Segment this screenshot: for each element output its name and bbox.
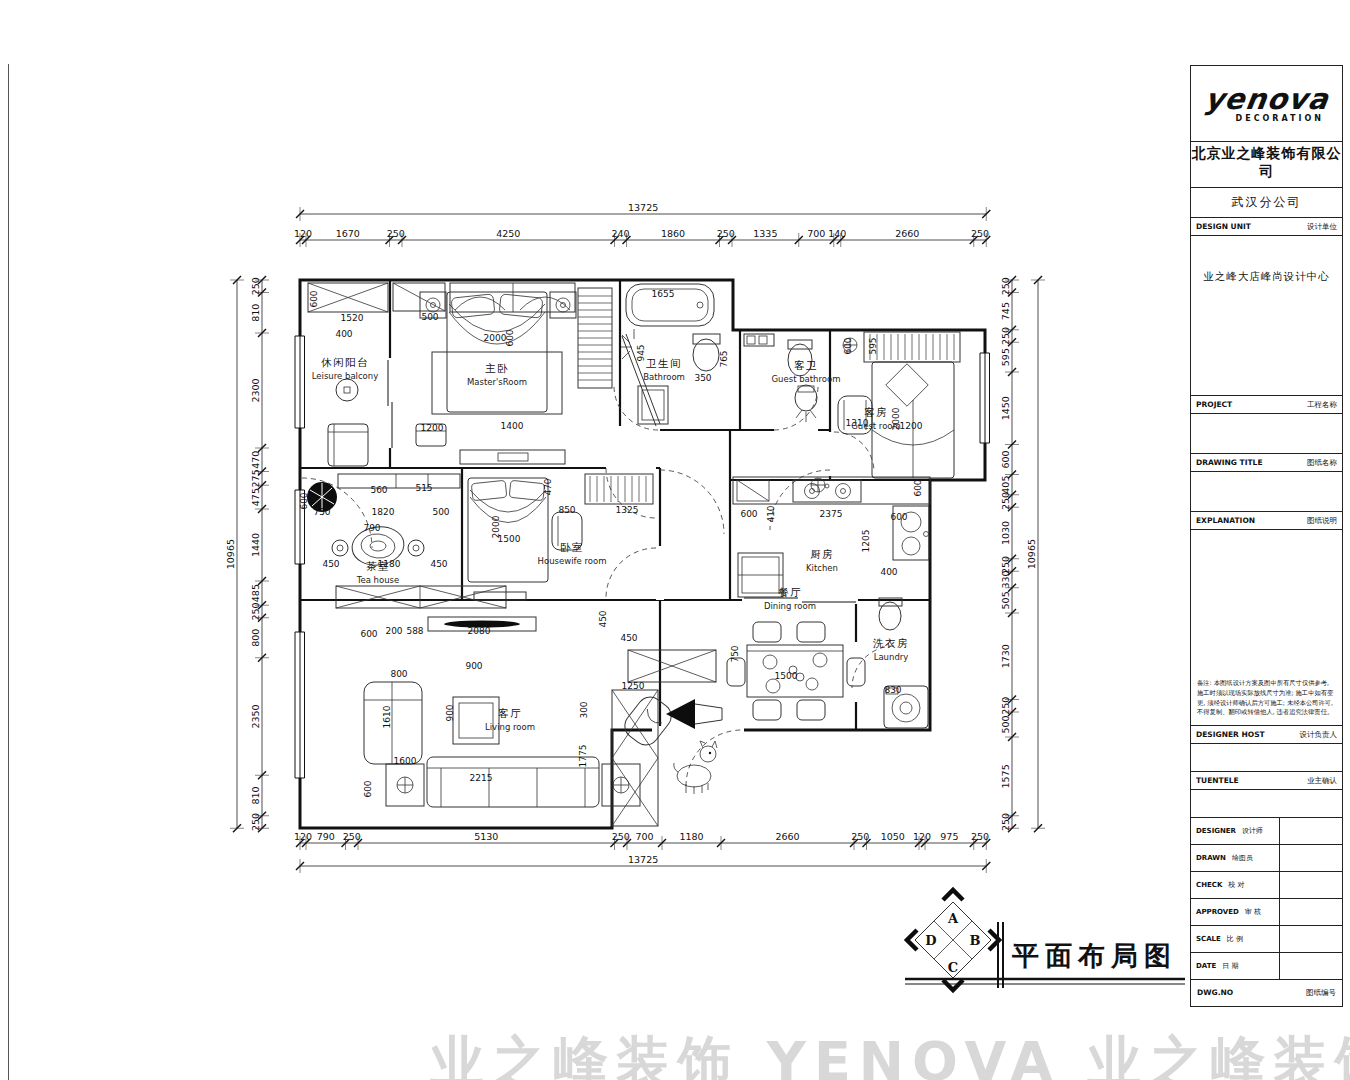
svg-text:2080: 2080 bbox=[468, 626, 491, 636]
svg-text:250: 250 bbox=[1000, 327, 1011, 345]
svg-text:Tea house: Tea house bbox=[356, 575, 400, 585]
svg-text:厨房: 厨房 bbox=[810, 548, 834, 560]
clientele-label-en: TUENTELE bbox=[1196, 776, 1239, 785]
furniture-guest-room bbox=[838, 332, 960, 478]
svg-text:250: 250 bbox=[1000, 277, 1011, 295]
svg-text:客厅: 客厅 bbox=[498, 707, 522, 719]
svg-text:Master'sRoom: Master'sRoom bbox=[467, 377, 527, 387]
svg-text:595: 595 bbox=[868, 337, 878, 354]
clientele-sign-area bbox=[1191, 790, 1342, 818]
note-title: 备注: bbox=[1197, 679, 1212, 686]
svg-text:Living room: Living room bbox=[485, 722, 535, 732]
svg-text:1610: 1610 bbox=[382, 705, 392, 728]
svg-text:卫生间: 卫生间 bbox=[646, 357, 682, 369]
designer-value bbox=[1279, 818, 1342, 844]
svg-text:主卧: 主卧 bbox=[485, 362, 509, 374]
svg-text:120: 120 bbox=[294, 831, 312, 842]
svg-text:2000: 2000 bbox=[484, 333, 507, 343]
svg-text:400: 400 bbox=[880, 567, 897, 577]
drawing-title-label-en: DRAWING TITLE bbox=[1196, 458, 1263, 467]
notes-text: 备注: 本图纸设计方案及图中所有尺寸仅供参考, 施工时须以现场实际放线尺寸为准;… bbox=[1197, 678, 1337, 717]
scale-label-cn: 比 例 bbox=[1227, 934, 1243, 944]
svg-text:330: 330 bbox=[1000, 570, 1011, 588]
svg-text:600: 600 bbox=[843, 337, 853, 354]
title-block: yenova DECORATION 北京业之峰装饰有限公司 BEIJING YE… bbox=[1190, 65, 1343, 1007]
svg-text:900: 900 bbox=[465, 661, 482, 671]
approved-value bbox=[1279, 899, 1342, 925]
svg-text:250: 250 bbox=[971, 831, 989, 842]
svg-text:600: 600 bbox=[299, 492, 309, 509]
dimension-chains: 1201670250425024018602501335700140266025… bbox=[225, 202, 1045, 873]
svg-text:700: 700 bbox=[635, 831, 653, 842]
svg-text:850: 850 bbox=[558, 505, 575, 515]
dwg-no-label-cn: 图纸编号 bbox=[1306, 988, 1336, 998]
svg-text:Bathroom: Bathroom bbox=[643, 372, 685, 382]
svg-text:1205: 1205 bbox=[861, 530, 871, 553]
svg-text:餐厅: 餐厅 bbox=[778, 586, 802, 598]
svg-text:1775: 1775 bbox=[578, 745, 588, 768]
company-name-cn: 北京业之峰装饰有限公司 bbox=[1191, 145, 1342, 181]
svg-text:Dining room: Dining room bbox=[764, 601, 816, 611]
svg-text:600: 600 bbox=[505, 329, 515, 346]
svg-text:900: 900 bbox=[445, 704, 455, 721]
compass-letter-c: C bbox=[948, 960, 958, 975]
date-label-cn: 日 期 bbox=[1222, 961, 1238, 971]
svg-text:13725: 13725 bbox=[628, 202, 658, 213]
drawn-label-cn: 绘图员 bbox=[1232, 853, 1253, 863]
date-value bbox=[1279, 953, 1342, 979]
orientation-compass: A B C D bbox=[907, 890, 999, 990]
designer-host-row: DESIGNER HOST 设计负责人 bbox=[1191, 726, 1342, 744]
explanation-label-en: EXPLANATION bbox=[1196, 516, 1255, 525]
svg-text:洗衣房: 洗衣房 bbox=[873, 637, 909, 649]
svg-text:2660: 2660 bbox=[895, 228, 919, 239]
svg-text:1250: 1250 bbox=[622, 681, 645, 691]
design-unit-label-cn: 设计单位 bbox=[1307, 222, 1337, 232]
svg-text:600: 600 bbox=[363, 780, 373, 797]
scale-row: SCALE比 例 bbox=[1191, 926, 1342, 953]
svg-text:250: 250 bbox=[717, 228, 735, 239]
svg-text:1730: 1730 bbox=[1000, 644, 1011, 668]
svg-text:2000: 2000 bbox=[491, 515, 501, 538]
svg-text:475: 475 bbox=[250, 488, 261, 506]
designer-label-en: DESIGNER bbox=[1196, 827, 1236, 835]
svg-text:750: 750 bbox=[313, 507, 330, 517]
project-value-area bbox=[1191, 414, 1342, 454]
watermark: 业之峰装饰 YENOVA 业之峰装饰 bbox=[430, 1026, 1350, 1080]
svg-text:Guest room: Guest room bbox=[851, 421, 901, 431]
svg-text:600: 600 bbox=[1000, 450, 1011, 468]
svg-text:250: 250 bbox=[250, 813, 261, 831]
svg-text:500: 500 bbox=[1000, 715, 1011, 733]
svg-text:250: 250 bbox=[387, 228, 405, 239]
svg-text:830: 830 bbox=[884, 685, 901, 695]
svg-text:588: 588 bbox=[406, 626, 423, 636]
project-label-cn: 工程名称 bbox=[1307, 400, 1337, 410]
svg-text:1520: 1520 bbox=[341, 313, 364, 323]
svg-text:1400: 1400 bbox=[501, 421, 524, 431]
svg-text:560: 560 bbox=[370, 485, 387, 495]
svg-text:1030: 1030 bbox=[1000, 521, 1011, 545]
svg-text:1440: 1440 bbox=[250, 533, 261, 557]
svg-text:1820: 1820 bbox=[372, 507, 395, 517]
svg-text:1050: 1050 bbox=[881, 831, 905, 842]
svg-text:1200: 1200 bbox=[421, 423, 444, 433]
svg-text:1670: 1670 bbox=[336, 228, 360, 239]
svg-text:1655: 1655 bbox=[652, 289, 675, 299]
svg-text:4250: 4250 bbox=[496, 228, 520, 239]
svg-text:400: 400 bbox=[335, 329, 352, 339]
check-row: CHECK校 对 bbox=[1191, 872, 1342, 899]
svg-text:470: 470 bbox=[250, 451, 261, 469]
svg-text:Laundry: Laundry bbox=[874, 652, 909, 662]
svg-text:140: 140 bbox=[828, 228, 846, 239]
drawn-row: DRAWN绘图员 bbox=[1191, 845, 1342, 872]
drawn-value bbox=[1279, 845, 1342, 871]
svg-text:810: 810 bbox=[250, 304, 261, 322]
svg-text:250: 250 bbox=[1000, 697, 1011, 715]
design-unit-label-en: DESIGN UNIT bbox=[1196, 222, 1251, 231]
approved-label-cn: 审 核 bbox=[1245, 907, 1261, 917]
svg-text:1450: 1450 bbox=[1000, 396, 1011, 420]
svg-text:250: 250 bbox=[851, 831, 869, 842]
svg-text:765: 765 bbox=[719, 350, 729, 367]
svg-text:2660: 2660 bbox=[775, 831, 799, 842]
drawing-sheet: A B C D 12016702504250240186025013357001… bbox=[0, 0, 1350, 1080]
svg-text:450: 450 bbox=[620, 633, 637, 643]
svg-text:10965: 10965 bbox=[225, 539, 236, 569]
svg-text:250: 250 bbox=[971, 228, 989, 239]
svg-text:2350: 2350 bbox=[250, 704, 261, 728]
svg-text:250: 250 bbox=[1000, 492, 1011, 510]
clientele-row: TUENTELE 业主确认 bbox=[1191, 772, 1342, 790]
dwg-no-row: DWG.NO 图纸编号 bbox=[1191, 980, 1342, 1005]
svg-text:790: 790 bbox=[363, 523, 380, 533]
svg-text:500: 500 bbox=[421, 312, 438, 322]
check-value bbox=[1279, 872, 1342, 898]
project-label-en: PROJECT bbox=[1196, 400, 1232, 409]
explanation-label-cn: 图纸说明 bbox=[1307, 516, 1337, 526]
svg-text:275: 275 bbox=[250, 469, 261, 487]
svg-text:1335: 1335 bbox=[753, 228, 777, 239]
svg-text:1600: 1600 bbox=[394, 756, 417, 766]
drawing-title-value-area bbox=[1191, 472, 1342, 512]
svg-text:600: 600 bbox=[740, 509, 757, 519]
svg-text:120: 120 bbox=[294, 228, 312, 239]
drawing-title-row: DRAWING TITLE 图纸名称 bbox=[1191, 454, 1342, 472]
date-label-en: DATE bbox=[1196, 962, 1216, 970]
svg-text:750: 750 bbox=[730, 645, 740, 662]
dwg-no-label-en: DWG.NO bbox=[1197, 988, 1233, 997]
furniture-tea-room bbox=[307, 474, 506, 608]
notes-area: 备注: 本图纸设计方案及图中所有尺寸仅供参考, 施工时须以现场实际放线尺寸为准;… bbox=[1191, 530, 1342, 726]
svg-text:470: 470 bbox=[543, 478, 553, 495]
company-logo: yenova DECORATION bbox=[1191, 66, 1342, 142]
compass-letter-a: A bbox=[947, 911, 959, 926]
approved-row: APPROVED审 核 bbox=[1191, 899, 1342, 926]
designer-row: DESIGNER设计师 bbox=[1191, 818, 1342, 845]
compass-letter-d: D bbox=[925, 933, 936, 948]
svg-text:120: 120 bbox=[913, 831, 931, 842]
date-row: DATE日 期 bbox=[1191, 953, 1342, 980]
svg-text:1200: 1200 bbox=[900, 421, 923, 431]
svg-text:5130: 5130 bbox=[474, 831, 498, 842]
designer-host-label-cn: 设计负责人 bbox=[1300, 730, 1338, 740]
designer-host-sign-area bbox=[1191, 744, 1342, 772]
floor-plan: A B C D 12016702504250240186025013357001… bbox=[0, 0, 1350, 1080]
dog-figure bbox=[674, 741, 717, 794]
svg-text:350: 350 bbox=[694, 373, 711, 383]
svg-text:Guest bathroom: Guest bathroom bbox=[772, 374, 841, 384]
design-unit-value: 业之峰大店峰尚设计中心 bbox=[1191, 236, 1342, 396]
svg-text:250: 250 bbox=[250, 602, 261, 620]
svg-text:Housewife room: Housewife room bbox=[538, 556, 607, 566]
explanation-row: EXPLANATION 图纸说明 bbox=[1191, 512, 1342, 530]
svg-text:1180: 1180 bbox=[679, 831, 703, 842]
check-label-cn: 校 对 bbox=[1228, 880, 1244, 890]
svg-text:Kitchen: Kitchen bbox=[806, 563, 838, 573]
svg-text:2215: 2215 bbox=[470, 773, 493, 783]
brand-wordmark: yenova bbox=[1203, 85, 1331, 114]
svg-text:300: 300 bbox=[579, 701, 589, 718]
svg-text:200: 200 bbox=[385, 626, 402, 636]
project-row: PROJECT 工程名称 bbox=[1191, 396, 1342, 414]
svg-text:600: 600 bbox=[890, 512, 907, 522]
svg-text:515: 515 bbox=[415, 483, 432, 493]
designer-host-label-en: DESIGNER HOST bbox=[1196, 730, 1265, 739]
svg-text:450: 450 bbox=[598, 610, 608, 627]
designer-label-cn: 设计师 bbox=[1242, 826, 1263, 836]
entry-arrow bbox=[666, 699, 695, 729]
svg-text:500: 500 bbox=[432, 507, 449, 517]
approved-label-en: APPROVED bbox=[1196, 908, 1239, 916]
svg-text:975: 975 bbox=[940, 831, 958, 842]
svg-text:450: 450 bbox=[430, 559, 447, 569]
svg-text:240: 240 bbox=[611, 228, 629, 239]
svg-text:250: 250 bbox=[612, 831, 630, 842]
check-label-en: CHECK bbox=[1196, 881, 1222, 889]
svg-text:600: 600 bbox=[309, 290, 319, 307]
svg-text:250: 250 bbox=[343, 831, 361, 842]
svg-text:600: 600 bbox=[360, 629, 377, 639]
svg-text:客卫: 客卫 bbox=[794, 359, 818, 371]
scale-value bbox=[1279, 926, 1342, 952]
company-name-block: 北京业之峰装饰有限公司 BEIJING YEZHIFENG DECORATION… bbox=[1191, 142, 1342, 188]
svg-text:1325: 1325 bbox=[616, 505, 639, 515]
branch-name: 武汉分公司 bbox=[1191, 188, 1342, 218]
svg-text:600: 600 bbox=[913, 479, 923, 496]
note-body: 本图纸设计方案及图中所有尺寸仅供参考, 施工时须以现场实际放线尺寸为准; 施工中… bbox=[1197, 679, 1333, 715]
svg-text:客房: 客房 bbox=[864, 406, 888, 418]
svg-text:505: 505 bbox=[1000, 591, 1011, 609]
clientele-label-cn: 业主确认 bbox=[1307, 776, 1337, 786]
drawing-title-label-cn: 图纸名称 bbox=[1307, 458, 1337, 468]
svg-text:2375: 2375 bbox=[820, 509, 843, 519]
drawn-label-en: DRAWN bbox=[1196, 854, 1226, 862]
scale-label-en: SCALE bbox=[1196, 935, 1221, 943]
svg-text:13725: 13725 bbox=[628, 854, 658, 865]
svg-text:410: 410 bbox=[766, 505, 776, 522]
svg-text:250: 250 bbox=[1000, 813, 1011, 831]
furniture-entry bbox=[612, 650, 722, 826]
svg-text:800: 800 bbox=[250, 629, 261, 647]
drawing-name: 平面布局图 bbox=[1012, 938, 1177, 974]
svg-text:800: 800 bbox=[390, 669, 407, 679]
svg-text:10965: 10965 bbox=[1026, 539, 1037, 569]
furniture-balcony bbox=[328, 379, 368, 466]
svg-text:2300: 2300 bbox=[250, 378, 261, 402]
svg-text:茶室: 茶室 bbox=[366, 560, 390, 572]
svg-text:485: 485 bbox=[250, 584, 261, 602]
svg-text:1500: 1500 bbox=[775, 671, 798, 681]
design-unit-row: DESIGN UNIT 设计单位 bbox=[1191, 218, 1342, 236]
svg-text:700: 700 bbox=[807, 228, 825, 239]
svg-text:1500: 1500 bbox=[498, 534, 521, 544]
svg-text:450: 450 bbox=[322, 559, 339, 569]
svg-text:1860: 1860 bbox=[661, 228, 685, 239]
svg-text:250: 250 bbox=[250, 277, 261, 295]
svg-text:休闲阳台: 休闲阳台 bbox=[321, 356, 369, 368]
svg-text:810: 810 bbox=[250, 786, 261, 804]
svg-text:卧室: 卧室 bbox=[560, 541, 584, 553]
svg-text:405: 405 bbox=[1000, 476, 1011, 494]
svg-text:Leisure balcony: Leisure balcony bbox=[312, 371, 379, 381]
svg-text:1575: 1575 bbox=[1000, 764, 1011, 788]
svg-text:595: 595 bbox=[1000, 348, 1011, 366]
compass-letter-b: B bbox=[970, 933, 981, 948]
svg-text:790: 790 bbox=[317, 831, 335, 842]
svg-text:745: 745 bbox=[1000, 302, 1011, 320]
svg-text:945: 945 bbox=[636, 344, 646, 361]
